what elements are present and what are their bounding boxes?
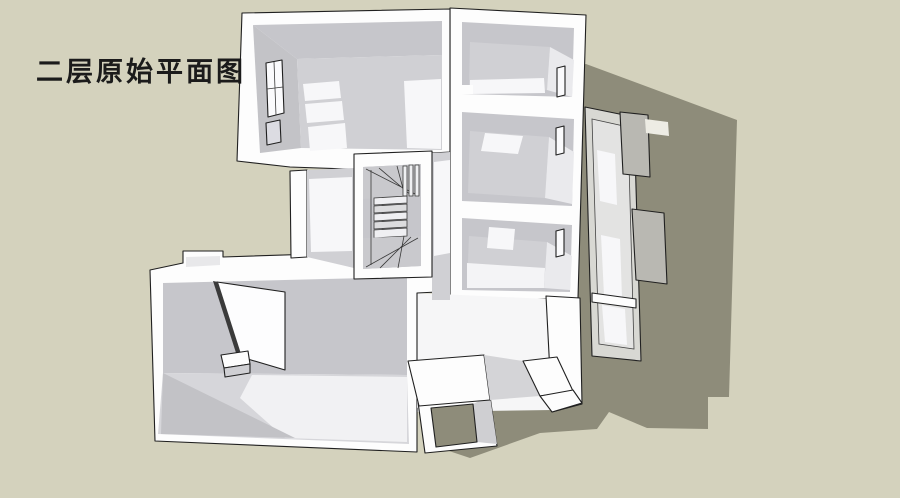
balcony-light-patch: [602, 305, 627, 345]
top-right-room: [462, 22, 574, 97]
floor-light-patch: [470, 78, 545, 94]
tread: [374, 204, 407, 213]
tread: [374, 228, 407, 238]
step-platform-top: [408, 355, 490, 406]
page-title: 二层原始平面图: [36, 50, 246, 89]
tread: [374, 220, 407, 229]
window: [556, 126, 564, 155]
window-small: [266, 120, 281, 145]
bottom-left-room: [150, 250, 437, 452]
corridor-wall: [290, 170, 307, 258]
floor-light-patch: [309, 177, 352, 252]
bottom-right-room: [462, 218, 572, 292]
edge-tread: [415, 165, 419, 196]
floorplan-screenshot: 二层原始平面图: [0, 0, 900, 498]
floor-light-patch: [308, 123, 347, 151]
floor-light-patch: [481, 133, 523, 154]
window: [556, 229, 564, 257]
corridor: [290, 168, 354, 268]
hallway: [432, 152, 450, 300]
right-rooms-block: [450, 8, 586, 302]
tread: [374, 196, 407, 205]
staircase: [354, 151, 432, 279]
floor-light-patch: [487, 227, 515, 250]
floor-light-patch: [404, 79, 441, 149]
tread: [374, 212, 407, 221]
balcony-box-lower: [632, 209, 667, 284]
floor-light-patch: [305, 101, 344, 123]
wall-notch: [462, 85, 473, 94]
floor-light-patch: [303, 81, 341, 101]
edge-tread: [409, 165, 413, 196]
step-notch: [431, 404, 477, 447]
balcony-light-patch: [597, 150, 617, 205]
top-left-room: [237, 9, 450, 172]
floor-light-patch: [434, 160, 450, 256]
window: [557, 66, 565, 97]
middle-right-room: [462, 112, 574, 206]
balcony-light-patch: [601, 235, 622, 298]
edge-tread: [403, 166, 407, 196]
